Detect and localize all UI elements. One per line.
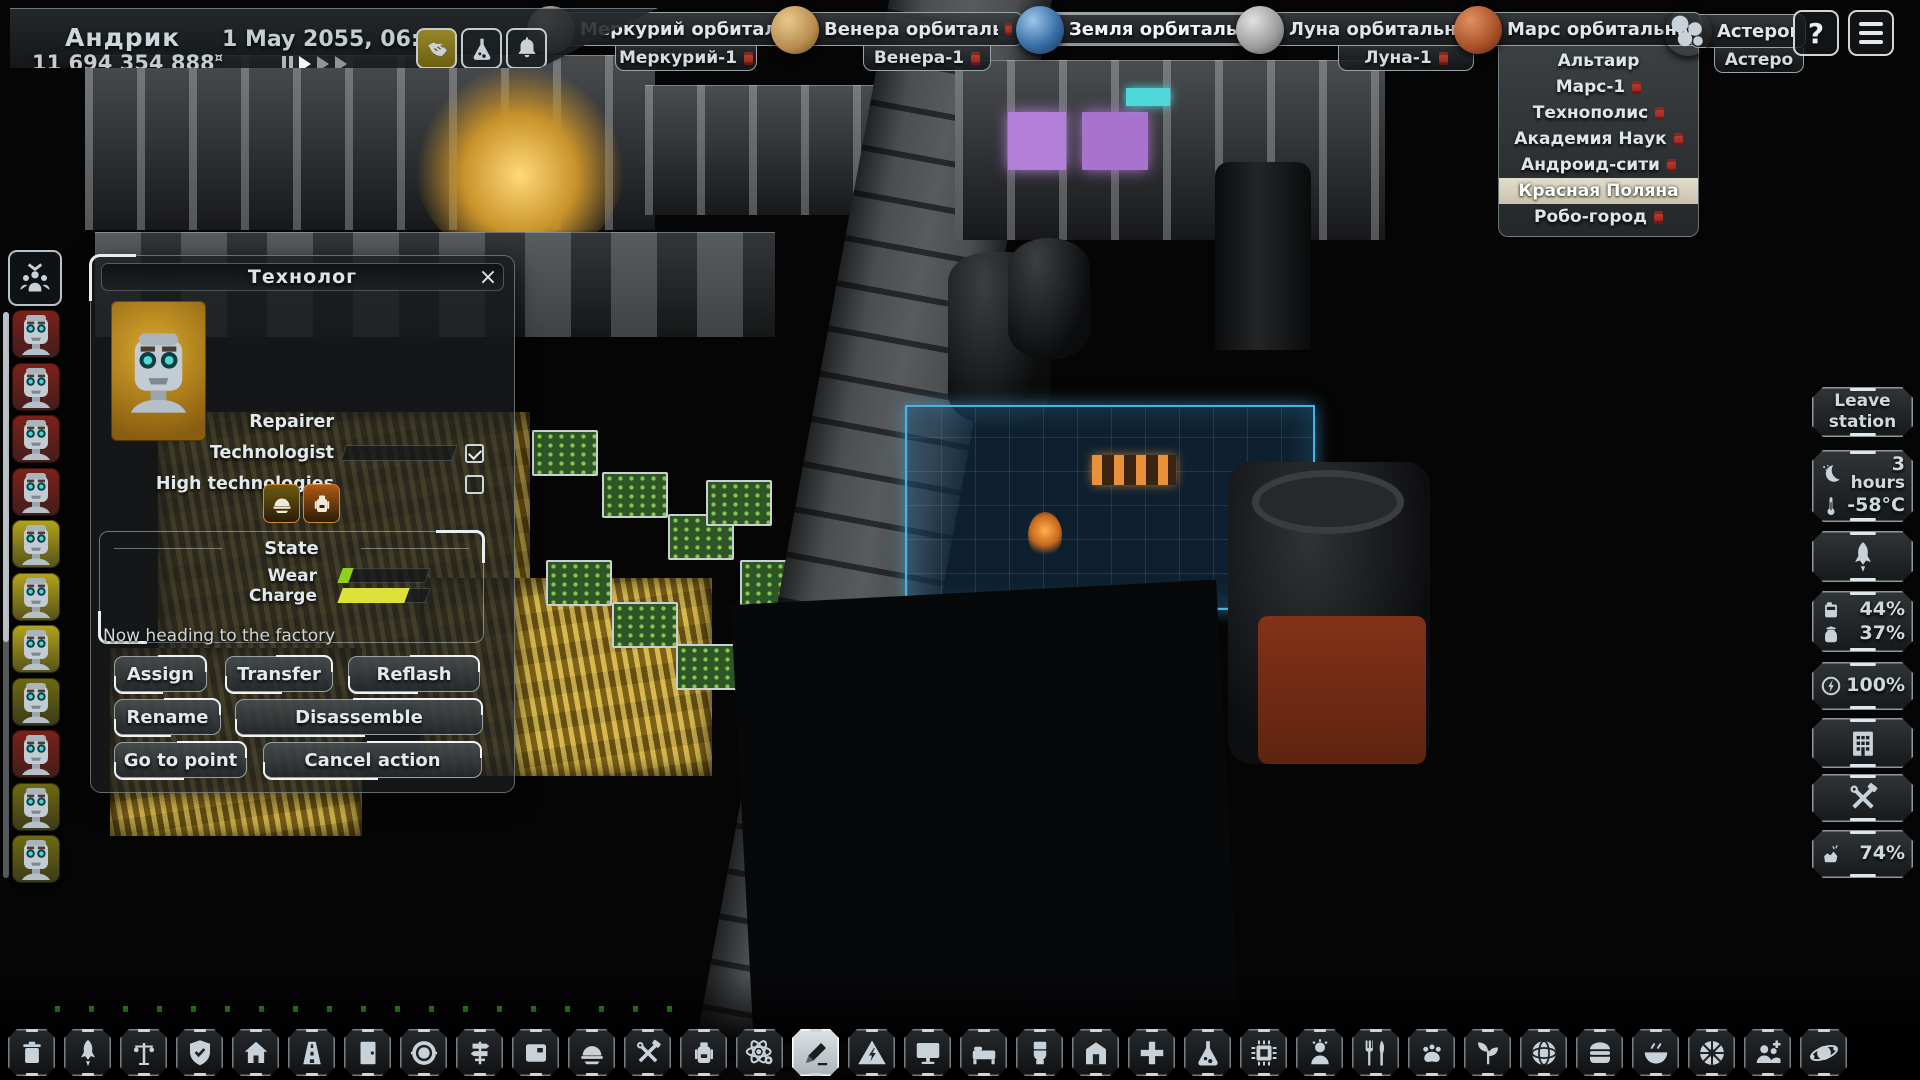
mars-colony-dropdown: АльтаирМарс-1ТехнополисАкадемия НаукАндр… bbox=[1498, 46, 1699, 237]
planting-tray bbox=[706, 480, 772, 526]
machine-base bbox=[1258, 616, 1426, 764]
button-label: Disassemble bbox=[295, 707, 423, 728]
info-row: 100% bbox=[1820, 675, 1905, 697]
info-unit: hours bbox=[1851, 475, 1905, 493]
bell-button[interactable] bbox=[506, 28, 547, 69]
crew-avatar[interactable] bbox=[12, 520, 60, 568]
alert-icon bbox=[1667, 159, 1676, 172]
flask-icon bbox=[1193, 1038, 1223, 1068]
info-tile: 44% 37% bbox=[1812, 591, 1913, 652]
toolbar-tools-button[interactable] bbox=[624, 1029, 671, 1076]
robot-avatar-icon bbox=[12, 573, 60, 621]
door-icon bbox=[353, 1038, 383, 1068]
skill-label: Technologist bbox=[210, 443, 334, 463]
alert-icon bbox=[1632, 81, 1641, 94]
console-lights bbox=[1092, 455, 1176, 485]
info-value: 3 bbox=[1892, 453, 1905, 475]
button-label: Cancel action bbox=[304, 750, 440, 771]
toolbar-hazard-button[interactable] bbox=[848, 1029, 895, 1076]
airlock-icon bbox=[409, 1038, 439, 1068]
tab-venus-colony[interactable]: Венера-1 bbox=[863, 46, 991, 71]
trash-icon bbox=[17, 1038, 47, 1068]
button-label: Transfer bbox=[237, 664, 321, 685]
crew-scrollbar[interactable] bbox=[3, 312, 9, 878]
toolbar-sphere-button[interactable] bbox=[1520, 1029, 1567, 1076]
info-value: 44% bbox=[1860, 598, 1905, 620]
hud-buttons bbox=[416, 28, 547, 69]
robot-avatar-icon bbox=[12, 730, 60, 778]
sphere-icon bbox=[1529, 1038, 1559, 1068]
crew-avatar[interactable] bbox=[12, 310, 60, 358]
robot-avatar-icon bbox=[12, 835, 60, 883]
alert-icon bbox=[1674, 133, 1683, 146]
tab-asteroid-colony[interactable]: Астеро bbox=[1714, 48, 1804, 73]
dropdown-item[interactable]: Андроид-сити bbox=[1499, 152, 1698, 178]
info-row: -58°C bbox=[1820, 495, 1905, 517]
road-icon bbox=[297, 1038, 327, 1068]
robot-avatar-icon bbox=[12, 310, 60, 358]
state-bar-label: Charge bbox=[249, 586, 317, 606]
dropdown-item[interactable]: Марс-1 bbox=[1499, 74, 1698, 100]
info-tile: 100% bbox=[1812, 662, 1913, 710]
building-button[interactable] bbox=[1812, 718, 1913, 768]
tab-label: Луна-1 bbox=[1364, 48, 1431, 68]
planting-tray bbox=[602, 472, 668, 518]
alert-icon bbox=[1005, 23, 1012, 36]
dropdown-item-label: Красная Поляна bbox=[1518, 181, 1678, 201]
crew-avatar[interactable] bbox=[12, 415, 60, 463]
panel-title: Технолог bbox=[101, 263, 504, 291]
button-label: Assign bbox=[127, 664, 194, 685]
paw-icon bbox=[1417, 1038, 1447, 1068]
info-tile: 3hours -58°C bbox=[1812, 450, 1913, 522]
build-toolbar bbox=[8, 1029, 1847, 1076]
gas-icon bbox=[1820, 623, 1842, 645]
button-label: Go to point bbox=[124, 750, 237, 771]
dropdown-item-label: Альтаир bbox=[1558, 51, 1640, 71]
earth-planet-icon bbox=[1016, 6, 1064, 54]
toolbar-monitor-button[interactable] bbox=[904, 1029, 951, 1076]
hardhat-icon bbox=[577, 1038, 607, 1068]
tab-group-venus: Венера орбитальнаяВенера-1 bbox=[797, 12, 1023, 46]
alert-icon bbox=[971, 52, 980, 65]
toolbar-id-card-button[interactable] bbox=[512, 1029, 559, 1076]
rename-button[interactable]: Rename bbox=[114, 699, 221, 735]
add-people-icon bbox=[1753, 1038, 1783, 1068]
info-tile: 74% bbox=[1812, 830, 1913, 878]
rocket-icon bbox=[1846, 540, 1880, 574]
toolbar-hardhat-button[interactable] bbox=[568, 1029, 615, 1076]
robot-info-panel: Технолог × RepairerTechnologistHigh tech… bbox=[90, 255, 515, 793]
window-glow bbox=[1082, 112, 1148, 170]
signpost-icon bbox=[465, 1038, 495, 1068]
robot-backpack-button[interactable] bbox=[303, 484, 340, 523]
robot-avatar-icon bbox=[12, 625, 60, 673]
id-card-icon bbox=[521, 1038, 551, 1068]
toolbar-bowl-button[interactable] bbox=[1632, 1029, 1679, 1076]
toolbar-paw-button[interactable] bbox=[1408, 1029, 1455, 1076]
planting-tray bbox=[612, 602, 678, 648]
robot-avatar-icon bbox=[12, 783, 60, 831]
button-label: Leave station bbox=[1812, 387, 1913, 437]
disassemble-button[interactable]: Disassemble bbox=[235, 699, 483, 735]
tab-label: Венера орбитальная bbox=[824, 19, 998, 40]
info-value: 100% bbox=[1846, 674, 1905, 696]
bowl-icon bbox=[1641, 1038, 1671, 1068]
info-row: 44% bbox=[1820, 599, 1905, 621]
house-icon bbox=[241, 1038, 271, 1068]
crew-avatar[interactable] bbox=[12, 625, 60, 673]
leave-station-button[interactable]: Leave station bbox=[1812, 387, 1913, 437]
toolbar-signpost-button[interactable] bbox=[456, 1029, 503, 1076]
info-row: 74% bbox=[1820, 843, 1905, 865]
dropdown-item-label: Марс-1 bbox=[1556, 77, 1626, 97]
selected-robot[interactable] bbox=[1028, 512, 1062, 558]
mars-planet-icon bbox=[1454, 6, 1502, 54]
alert-icon bbox=[1439, 52, 1448, 65]
orbit-icon bbox=[1809, 1038, 1839, 1068]
building-icon bbox=[1846, 726, 1880, 760]
handshake-button[interactable] bbox=[416, 28, 457, 69]
info-value: -58°C bbox=[1847, 494, 1905, 516]
info-value: 37% bbox=[1860, 622, 1905, 644]
tab-label: Луна орбитальная bbox=[1289, 19, 1475, 40]
robot-avatar-icon bbox=[12, 415, 60, 463]
monitor-icon bbox=[913, 1038, 943, 1068]
tools-icon bbox=[633, 1038, 663, 1068]
tall-cylinder bbox=[1215, 162, 1311, 350]
dropdown-item-label: Андроид-сити bbox=[1521, 155, 1660, 175]
alert-icon bbox=[1655, 107, 1664, 120]
burger-icon bbox=[1585, 1038, 1615, 1068]
assign-button[interactable]: Assign bbox=[114, 656, 207, 692]
fuel-icon bbox=[1820, 599, 1842, 621]
toolbar-flask-button[interactable] bbox=[1184, 1029, 1231, 1076]
info-row: 37% bbox=[1820, 623, 1905, 645]
robot-status-text: Now heading to the factory bbox=[103, 626, 335, 646]
toilet-icon bbox=[1025, 1038, 1055, 1068]
toolbar-burger-button[interactable] bbox=[1576, 1029, 1623, 1076]
skill-checkbox[interactable] bbox=[465, 475, 484, 494]
planting-tray bbox=[532, 430, 598, 476]
asteroid-icon bbox=[1664, 8, 1712, 56]
crew-avatar[interactable] bbox=[12, 730, 60, 778]
streetlight-icon bbox=[129, 1038, 159, 1068]
skill-row: Repairer bbox=[91, 411, 514, 433]
machine-top bbox=[1252, 470, 1404, 534]
venus-planet-icon bbox=[771, 6, 819, 54]
tab-label: Меркурий-1 bbox=[619, 48, 737, 68]
robot-avatar-icon bbox=[12, 363, 60, 411]
player-name: Андрик bbox=[65, 23, 180, 52]
tools-button[interactable] bbox=[1812, 774, 1913, 822]
toolbar-airlock-button[interactable] bbox=[400, 1029, 447, 1076]
tab-moon-colony[interactable]: Луна-1 bbox=[1338, 46, 1474, 71]
toolbar-wheel-button[interactable] bbox=[1688, 1029, 1735, 1076]
robot-avatar-icon bbox=[12, 468, 60, 516]
robot-backpack-icon bbox=[689, 1038, 719, 1068]
medical-icon bbox=[1137, 1038, 1167, 1068]
toolbar-door-button[interactable] bbox=[344, 1029, 391, 1076]
toolbar-shield-button[interactable] bbox=[176, 1029, 223, 1076]
dropdown-item-label: Робо-город bbox=[1534, 207, 1647, 227]
dropdown-item-label: Академия Наук bbox=[1514, 129, 1666, 149]
toolbar-plant-button[interactable] bbox=[1464, 1029, 1511, 1076]
cutlery-icon bbox=[1361, 1038, 1391, 1068]
skill-checkbox[interactable] bbox=[465, 444, 484, 463]
furniture-icon bbox=[969, 1038, 999, 1068]
toolbar-trash-button[interactable] bbox=[8, 1029, 55, 1076]
state-bar-row: Charge bbox=[100, 588, 483, 604]
skill-label: Repairer bbox=[249, 412, 334, 432]
planting-tray bbox=[676, 644, 742, 690]
hardhat-button[interactable] bbox=[263, 484, 300, 523]
dropdown-item-label: Технополис bbox=[1533, 103, 1648, 123]
tab-label: Астерои bbox=[1717, 21, 1795, 42]
crew-group-icon bbox=[16, 259, 54, 297]
dropdown-item[interactable]: Академия Наук bbox=[1499, 126, 1698, 152]
dropdown-item[interactable]: Красная Поляна bbox=[1499, 178, 1698, 204]
info-value: 74% bbox=[1860, 842, 1905, 864]
state-bar-label: Wear bbox=[267, 566, 317, 586]
crew-avatar[interactable] bbox=[12, 468, 60, 516]
state-bar-row: Wear bbox=[100, 568, 483, 584]
close-icon[interactable]: × bbox=[476, 265, 500, 289]
tab-moon-orbital[interactable]: Луна орбитальная bbox=[1262, 12, 1486, 46]
android-icon bbox=[1305, 1038, 1335, 1068]
tab-label: Венера-1 bbox=[874, 48, 964, 68]
toolbar-chip-button[interactable] bbox=[1240, 1029, 1287, 1076]
go-to-point-button[interactable]: Go to point bbox=[114, 742, 247, 778]
tab-group-moon: Луна орбитальнаяЛуна-1 bbox=[1262, 12, 1486, 46]
button-label: Reflash bbox=[376, 664, 451, 685]
toolbar-toilet-button[interactable] bbox=[1016, 1029, 1063, 1076]
science-flask-button[interactable] bbox=[461, 28, 502, 69]
reflash-button[interactable]: Reflash bbox=[348, 656, 480, 692]
tab-venus-orbital[interactable]: Венера орбитальная bbox=[797, 12, 1023, 46]
toolbar-orbit-button[interactable] bbox=[1800, 1029, 1847, 1076]
robot-avatar-icon bbox=[12, 678, 60, 726]
chip-icon bbox=[1249, 1038, 1279, 1068]
divider bbox=[361, 548, 469, 549]
terrain-edit-icon bbox=[801, 1038, 831, 1068]
skill-row: Technologist bbox=[91, 442, 514, 464]
tools-icon bbox=[1846, 781, 1880, 815]
robot-backpack-icon bbox=[310, 492, 334, 516]
help-label: ? bbox=[1808, 17, 1824, 50]
crew-avatar[interactable] bbox=[12, 783, 60, 831]
crew-avatar[interactable] bbox=[12, 573, 60, 621]
state-bar bbox=[337, 588, 430, 603]
toolbar-road-button[interactable] bbox=[288, 1029, 335, 1076]
dropdown-item[interactable]: Технополис bbox=[1499, 100, 1698, 126]
crew-avatar[interactable] bbox=[12, 835, 60, 883]
toolbar-atom-button[interactable] bbox=[736, 1029, 783, 1076]
hardhat-icon bbox=[270, 492, 294, 516]
toolbar-streetlight-button[interactable] bbox=[120, 1029, 167, 1076]
help-button[interactable]: ? bbox=[1793, 10, 1839, 56]
rocket-button[interactable] bbox=[1812, 531, 1913, 582]
toolbar-cutlery-button[interactable] bbox=[1352, 1029, 1399, 1076]
tab-label: Астеро bbox=[1725, 50, 1793, 70]
crew-avatar[interactable] bbox=[12, 363, 60, 411]
toolbar-rocket-button[interactable] bbox=[64, 1029, 111, 1076]
info-row: 3hours bbox=[1820, 455, 1905, 493]
toolbar-furniture-button[interactable] bbox=[960, 1029, 1007, 1076]
ore-icon bbox=[1820, 843, 1842, 865]
planting-tray bbox=[546, 560, 612, 606]
robot-avatar-icon bbox=[12, 520, 60, 568]
transfer-button[interactable]: Transfer bbox=[225, 656, 333, 692]
tab-group-asteroid: АстероиАстеро bbox=[1690, 14, 1806, 48]
atom-icon bbox=[745, 1038, 775, 1068]
toolbar-medical-button[interactable] bbox=[1128, 1029, 1175, 1076]
window-glow bbox=[1126, 88, 1170, 106]
shield-icon bbox=[185, 1038, 215, 1068]
skill-progress-bar bbox=[340, 445, 458, 461]
bunker-icon bbox=[1081, 1038, 1111, 1068]
toolbar-robot-backpack-button[interactable] bbox=[680, 1029, 727, 1076]
hazard-icon bbox=[857, 1038, 887, 1068]
bell-icon bbox=[514, 36, 540, 62]
rocket-icon bbox=[73, 1038, 103, 1068]
cancel-action-button[interactable]: Cancel action bbox=[263, 742, 482, 778]
toolbar-add-people-button[interactable] bbox=[1744, 1029, 1791, 1076]
currency-icon: ¤ bbox=[215, 51, 223, 66]
wheel-icon bbox=[1697, 1038, 1727, 1068]
toolbar-android-button[interactable] bbox=[1296, 1029, 1343, 1076]
science-flask-icon bbox=[469, 36, 495, 62]
handshake-icon bbox=[424, 36, 450, 62]
tab-mercury-colony[interactable]: Меркурий-1 bbox=[615, 46, 757, 71]
asteroid-planet-icon bbox=[1664, 8, 1712, 56]
moon-icon bbox=[1820, 463, 1842, 485]
toolbar-house-button[interactable] bbox=[232, 1029, 279, 1076]
menu-button[interactable] bbox=[1848, 10, 1894, 56]
divider bbox=[114, 548, 222, 549]
thermometer-icon bbox=[1820, 495, 1842, 517]
alert-icon bbox=[1654, 211, 1663, 224]
energy-icon bbox=[1820, 675, 1842, 697]
window-glow bbox=[1008, 112, 1066, 170]
crew-avatar[interactable] bbox=[12, 678, 60, 726]
hamburger-menu-icon bbox=[1859, 22, 1883, 44]
toolbar-bunker-button[interactable] bbox=[1072, 1029, 1119, 1076]
alert-icon bbox=[744, 52, 753, 65]
storage-tank bbox=[1008, 238, 1090, 360]
moon-planet-icon bbox=[1236, 6, 1284, 54]
state-bar bbox=[337, 568, 430, 583]
button-label: Rename bbox=[127, 707, 209, 728]
dropdown-item[interactable]: Робо-город bbox=[1499, 204, 1698, 230]
plant-icon bbox=[1473, 1038, 1503, 1068]
toolbar-terrain-edit-button[interactable] bbox=[792, 1029, 839, 1076]
crew-list-button[interactable] bbox=[8, 250, 62, 306]
